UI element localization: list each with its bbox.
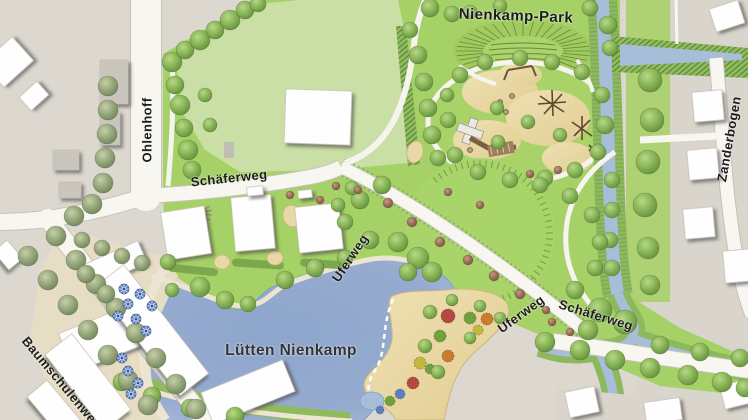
tree <box>216 291 234 309</box>
tree <box>18 246 38 266</box>
tree <box>94 240 110 256</box>
tree <box>637 237 659 259</box>
tree <box>602 40 618 56</box>
tree <box>562 188 578 204</box>
tree <box>553 128 567 142</box>
tree <box>731 349 748 367</box>
planting-dot <box>464 312 476 324</box>
building <box>692 90 725 123</box>
planting-dot <box>441 309 455 323</box>
tree <box>415 73 433 91</box>
tree <box>548 318 556 326</box>
tree <box>584 207 600 223</box>
tree <box>240 296 256 312</box>
tree <box>444 188 452 196</box>
tree <box>521 115 535 129</box>
building <box>53 150 79 170</box>
tree <box>638 68 662 92</box>
building <box>231 194 276 251</box>
tree <box>574 64 590 80</box>
parasol <box>141 326 151 336</box>
tree <box>640 275 660 295</box>
tree <box>165 283 179 297</box>
tree <box>578 320 598 340</box>
tree <box>470 164 486 180</box>
tree <box>452 67 468 83</box>
tree <box>651 336 669 354</box>
tree <box>640 358 660 378</box>
planting-dot <box>407 377 419 389</box>
tree <box>605 350 625 370</box>
building <box>161 206 212 260</box>
tree <box>114 248 130 264</box>
tree <box>446 294 458 306</box>
parasol <box>123 366 133 376</box>
tree <box>640 108 664 132</box>
tree <box>463 255 473 265</box>
tree <box>419 99 437 117</box>
building <box>723 249 748 283</box>
planting-dot <box>434 330 446 342</box>
tree <box>566 281 584 299</box>
tree <box>526 170 534 178</box>
tree <box>582 0 598 16</box>
tree <box>532 177 548 193</box>
tree <box>421 0 439 17</box>
tree <box>98 76 118 96</box>
lake-label: Lütten Nienkamp <box>225 342 357 360</box>
tree <box>373 176 391 194</box>
tree <box>388 232 408 252</box>
tree <box>477 54 493 70</box>
tree <box>402 22 418 38</box>
tree <box>82 194 102 214</box>
tree <box>134 255 150 271</box>
planting-dot <box>481 313 493 325</box>
tree <box>98 100 118 120</box>
tree <box>599 16 617 34</box>
tree <box>332 182 340 190</box>
tree <box>198 88 212 102</box>
planting-dot <box>442 350 454 362</box>
parasol <box>131 314 141 324</box>
tree <box>175 119 193 137</box>
tree <box>337 214 353 230</box>
parasol <box>117 353 127 363</box>
tree <box>97 124 117 144</box>
tree <box>587 260 603 276</box>
tree <box>590 144 606 160</box>
tree <box>38 270 58 290</box>
tree <box>554 166 562 174</box>
tree <box>542 306 550 314</box>
tree <box>712 372 732 392</box>
tree <box>422 262 442 282</box>
tree <box>58 295 78 315</box>
tree <box>474 300 486 312</box>
parasol <box>126 389 136 399</box>
tree <box>570 340 590 360</box>
tree <box>592 234 608 250</box>
building <box>284 89 352 145</box>
tree <box>567 162 583 178</box>
planting-dot <box>473 325 483 335</box>
tree <box>691 343 709 361</box>
tree <box>407 217 417 227</box>
tree <box>512 50 528 66</box>
planting-dot <box>385 396 395 406</box>
tree <box>166 374 186 394</box>
tree <box>97 285 115 303</box>
tree <box>409 46 427 64</box>
tree <box>594 87 610 103</box>
tree <box>399 263 417 281</box>
parasol <box>123 299 133 309</box>
planting-dot <box>376 406 384 414</box>
tree <box>476 201 484 209</box>
tree <box>418 339 432 353</box>
tree <box>444 6 460 22</box>
tree <box>46 226 66 246</box>
tree <box>430 150 446 166</box>
tree <box>316 196 324 204</box>
tree <box>78 320 98 340</box>
tree <box>566 328 574 336</box>
tree <box>464 332 476 344</box>
tree <box>178 140 198 160</box>
tree <box>190 277 210 297</box>
tree <box>490 101 504 115</box>
parasol <box>135 289 145 299</box>
tree <box>331 198 345 212</box>
parasol <box>147 301 157 311</box>
tree <box>286 191 294 199</box>
tree <box>95 148 115 168</box>
tree <box>544 54 560 70</box>
building <box>247 186 264 197</box>
tree <box>203 118 217 132</box>
tree <box>633 193 657 217</box>
parasol <box>119 284 129 294</box>
street-label-ohlenhoff: Ohlenhoff <box>140 98 155 163</box>
tree <box>166 76 184 94</box>
tree <box>431 365 445 379</box>
tree <box>435 237 445 247</box>
tree <box>604 260 620 276</box>
tree <box>306 259 324 277</box>
tree <box>160 254 176 270</box>
tree <box>604 202 620 218</box>
tree <box>678 365 698 385</box>
landscape-plan: Nienkamp-Park Lütten Nienkamp Ohlenhoff … <box>0 0 748 420</box>
tree <box>186 399 206 419</box>
tree <box>423 305 437 319</box>
tree <box>64 206 84 226</box>
tree <box>138 395 158 415</box>
tree <box>440 88 454 102</box>
building <box>298 189 313 198</box>
tree <box>604 172 620 188</box>
parasol <box>113 311 123 321</box>
tree <box>170 95 190 115</box>
tree <box>93 173 113 193</box>
tree <box>354 186 362 194</box>
tree <box>596 116 614 134</box>
tree <box>489 271 499 281</box>
planting-dot <box>395 389 405 399</box>
tree <box>502 172 518 188</box>
tree <box>535 332 555 352</box>
tree <box>636 150 660 174</box>
tree <box>146 348 166 368</box>
parasol <box>133 378 143 388</box>
building <box>683 207 716 240</box>
tree <box>447 147 463 163</box>
tree <box>383 198 393 208</box>
parking-spot <box>224 142 234 158</box>
tree <box>491 135 505 149</box>
tree <box>440 112 456 128</box>
tree <box>276 271 294 289</box>
building <box>59 182 81 198</box>
tree <box>423 126 441 144</box>
planting-dot <box>414 357 426 369</box>
tree <box>77 265 95 283</box>
tree <box>98 345 118 365</box>
tree <box>74 232 90 248</box>
plan-graphic <box>0 0 748 420</box>
tree <box>515 289 525 299</box>
